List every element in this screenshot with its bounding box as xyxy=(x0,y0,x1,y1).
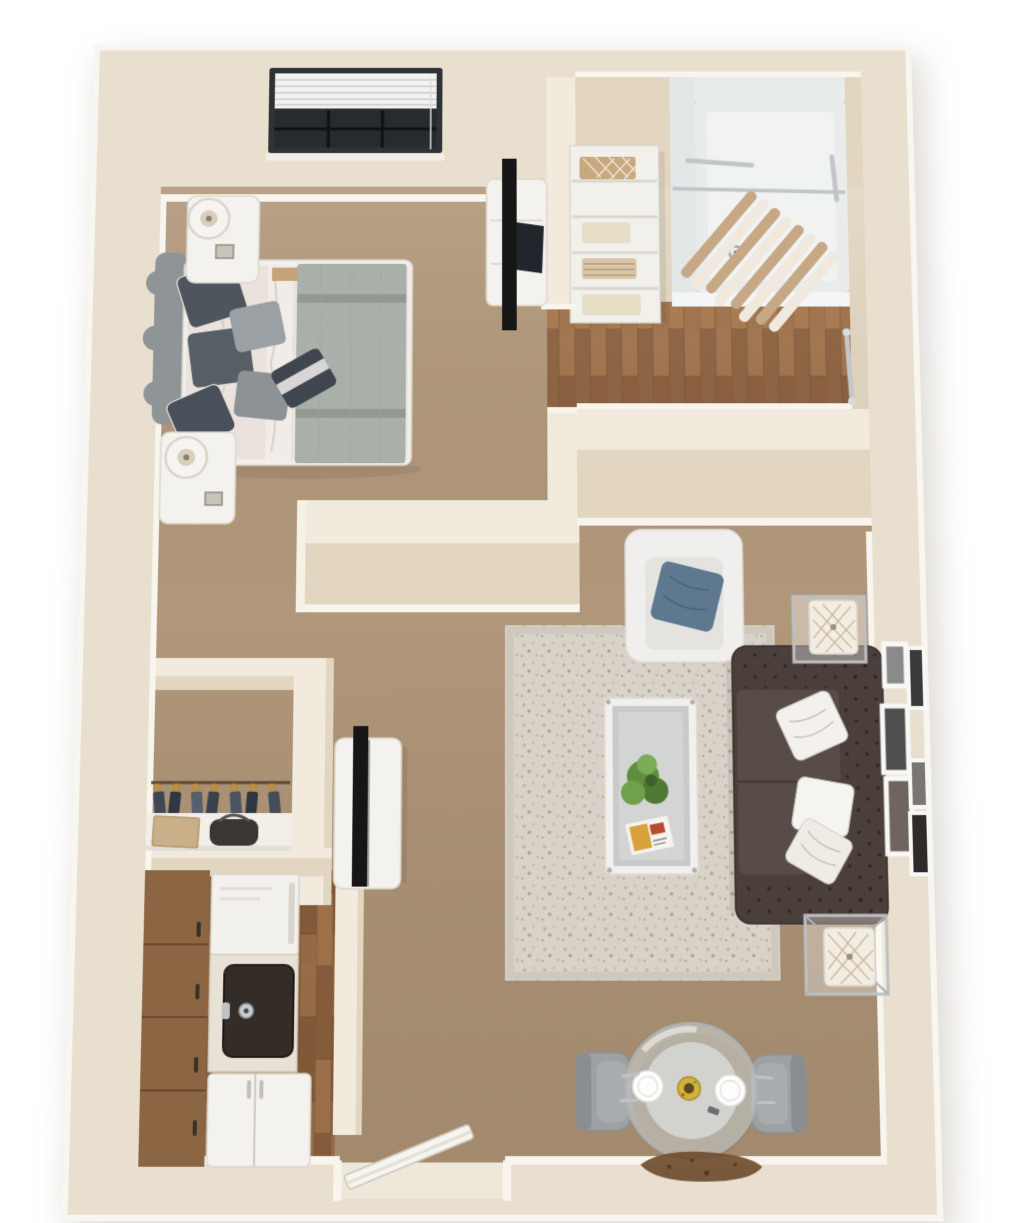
entry-jamb-left xyxy=(333,1160,342,1201)
faucet-handle xyxy=(221,1002,229,1019)
linen-shelf xyxy=(570,146,667,323)
media-console xyxy=(333,726,407,889)
towel-patterned-top xyxy=(579,157,635,179)
picture-frame-2 xyxy=(882,706,909,772)
end-table-top xyxy=(793,596,866,662)
shower-back-wall xyxy=(669,77,845,101)
towel-cream-2 xyxy=(582,294,641,315)
bathroom-door-jamb-bottom xyxy=(547,407,577,413)
storage-box xyxy=(152,816,200,848)
baseboard-bathroom-north xyxy=(575,72,861,78)
knife-left xyxy=(619,1099,638,1102)
towel-patterned-mid xyxy=(582,258,637,279)
sofa-bottom-arm-tufting xyxy=(741,880,884,917)
bedroom-south-wall-endcap xyxy=(296,500,306,610)
living-north-wall-baseboard xyxy=(577,518,871,526)
cabinet-handle-4 xyxy=(193,1120,197,1136)
nightstand-bottom xyxy=(159,432,236,523)
bedroom-east-wall-lower xyxy=(547,409,577,514)
end-table-bottom xyxy=(805,915,888,994)
nightstand-bottom-frame-decor xyxy=(205,492,222,505)
nightstand-top xyxy=(186,196,260,283)
floor-plan-stage xyxy=(0,0,1010,1223)
floor-plan-3d-scene xyxy=(0,29,1010,1223)
bedroom-tv-screen xyxy=(515,222,544,273)
dining-chair-left xyxy=(576,1053,632,1131)
stove-handle xyxy=(288,883,295,945)
picture-frame-6 xyxy=(910,813,930,874)
cabinet-handle-1 xyxy=(197,922,201,937)
sofa xyxy=(726,646,889,924)
bedroom-south-wall-face xyxy=(296,543,580,606)
living-north-wall-cap xyxy=(577,409,870,450)
bedroom-south-wall-baseboard xyxy=(296,604,580,612)
fridge-handle-1 xyxy=(247,1080,251,1099)
bedroom-south-wall-cap xyxy=(297,500,580,543)
walk-in-shower xyxy=(669,77,850,334)
picture-frame-1 xyxy=(884,644,907,686)
refrigerator xyxy=(206,1074,310,1167)
kitchen-sink xyxy=(223,965,294,1057)
towel-cream-1 xyxy=(582,222,631,243)
bathroom-door-jamb-top xyxy=(547,304,576,310)
bedroom-window xyxy=(266,68,444,161)
kitchen-cabinets xyxy=(138,870,210,1167)
closet-bag xyxy=(209,815,258,846)
living-tv-edge xyxy=(368,740,369,886)
armchair xyxy=(625,530,744,662)
gallery-wall xyxy=(881,644,930,874)
cabinet-handle-2 xyxy=(195,984,199,1000)
dining-chair-right xyxy=(750,1055,807,1133)
bedroom-dresser-tv xyxy=(486,159,547,331)
window-blinds xyxy=(275,73,437,108)
fridge-handle-2 xyxy=(259,1080,263,1099)
room-kitchen xyxy=(138,870,313,1167)
entry-jamb-right xyxy=(503,1160,511,1201)
knife-right xyxy=(757,1101,776,1104)
floor-plan-drawing xyxy=(0,29,1010,1223)
bathroom-south-baseboard xyxy=(577,403,852,409)
picture-frame-5 xyxy=(910,760,928,807)
stove xyxy=(210,874,299,954)
sink-counter xyxy=(208,955,298,1072)
plate-right xyxy=(715,1075,746,1107)
picture-frame-4 xyxy=(908,648,926,708)
nightstand-top-frame-decor xyxy=(216,245,234,258)
living-tv xyxy=(352,726,369,887)
living-north-wall-face xyxy=(577,450,872,518)
bedroom-tv xyxy=(502,159,517,331)
cabinet-handle-3 xyxy=(194,1057,198,1073)
coffee-table xyxy=(604,698,698,874)
window-sill xyxy=(266,153,444,160)
